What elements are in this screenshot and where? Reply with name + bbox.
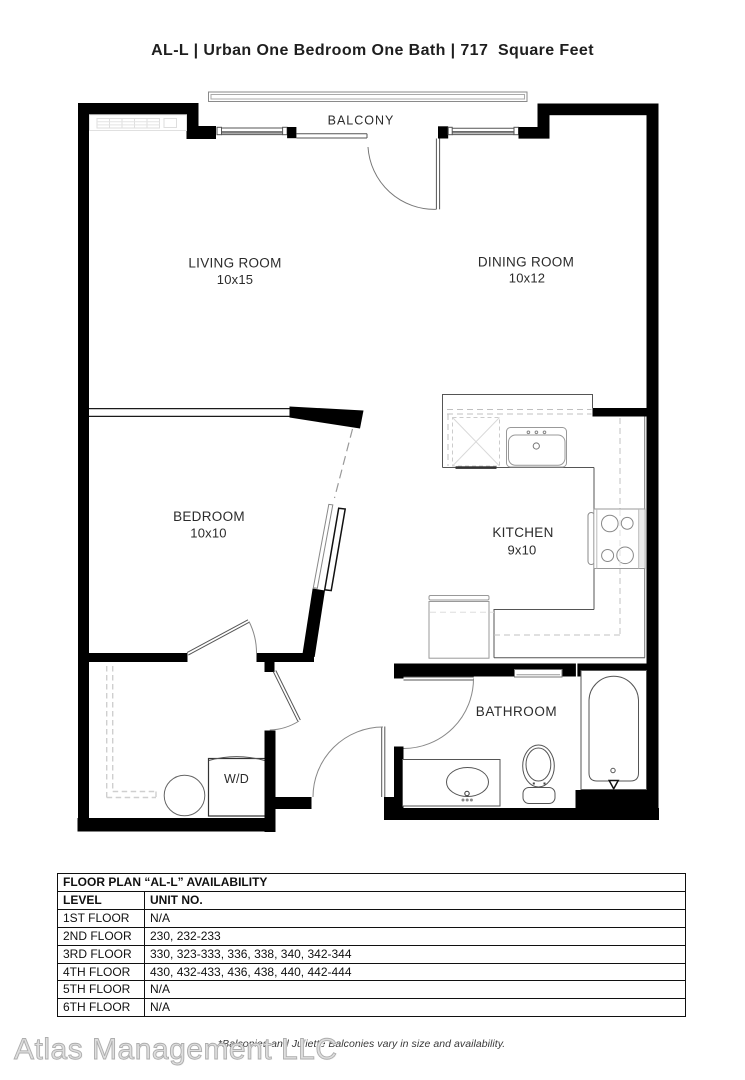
svg-text:BEDROOM: BEDROOM [173,509,245,524]
svg-text:DINING ROOM: DINING ROOM [478,255,574,270]
svg-text:BATHROOM: BATHROOM [476,704,557,719]
svg-text:10x10: 10x10 [190,526,226,541]
svg-text:9x10: 9x10 [508,543,537,558]
svg-text:10x12: 10x12 [509,271,545,286]
svg-text:W/D: W/D [224,772,249,786]
svg-text:10x15: 10x15 [217,272,253,287]
svg-text:LIVING ROOM: LIVING ROOM [188,256,281,271]
svg-text:KITCHEN: KITCHEN [492,525,553,540]
svg-text:BALCONY: BALCONY [328,114,395,128]
